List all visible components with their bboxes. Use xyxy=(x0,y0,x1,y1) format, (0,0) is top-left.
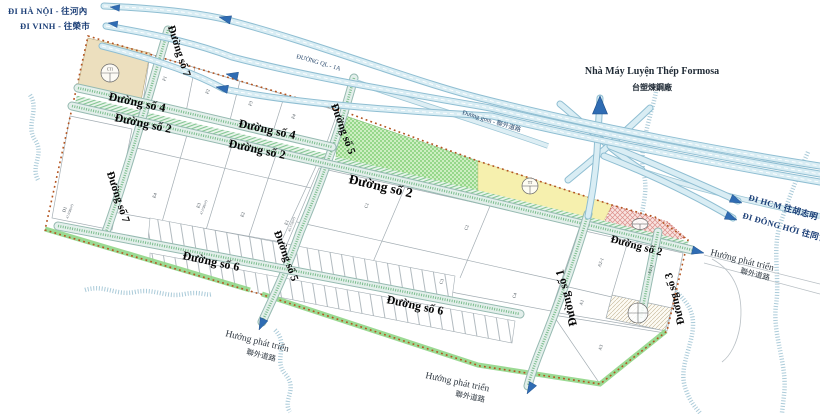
stream-far-right xyxy=(775,152,808,413)
stream-left-upper xyxy=(30,95,39,180)
symbol-hatched-parcel xyxy=(628,303,648,323)
label-di-hanoi: ĐI HÀ NỘI - 往河內 xyxy=(8,6,88,16)
symbol-yellow-zone: TT xyxy=(522,178,538,194)
symbol-tan-code: CT1 xyxy=(107,68,114,72)
arrow-formosa-up xyxy=(593,96,608,114)
label-formosa-zh: 台塑煉鋼廠 xyxy=(632,82,673,92)
stream-bottom-left-horizontal xyxy=(85,288,212,295)
symbol-red-zone xyxy=(632,219,648,230)
map-canvas: CT1 TT ĐI HÀ NỘI - 往河內 ĐI VINH - 往榮市 Nhà… xyxy=(0,0,820,414)
industrial-zone-plan-map: CT1 TT ĐI HÀ NỘI - 往河內 ĐI VINH - 往榮市 Nhà… xyxy=(0,0,820,414)
label-di-vinh: ĐI VINH - 往榮市 xyxy=(20,21,90,31)
arrow-east-exit xyxy=(691,246,705,257)
label-formosa-vi: Nhà Máy Luyện Thép Formosa xyxy=(585,66,719,77)
symbol-tan-parcel: CT1 xyxy=(101,64,119,82)
